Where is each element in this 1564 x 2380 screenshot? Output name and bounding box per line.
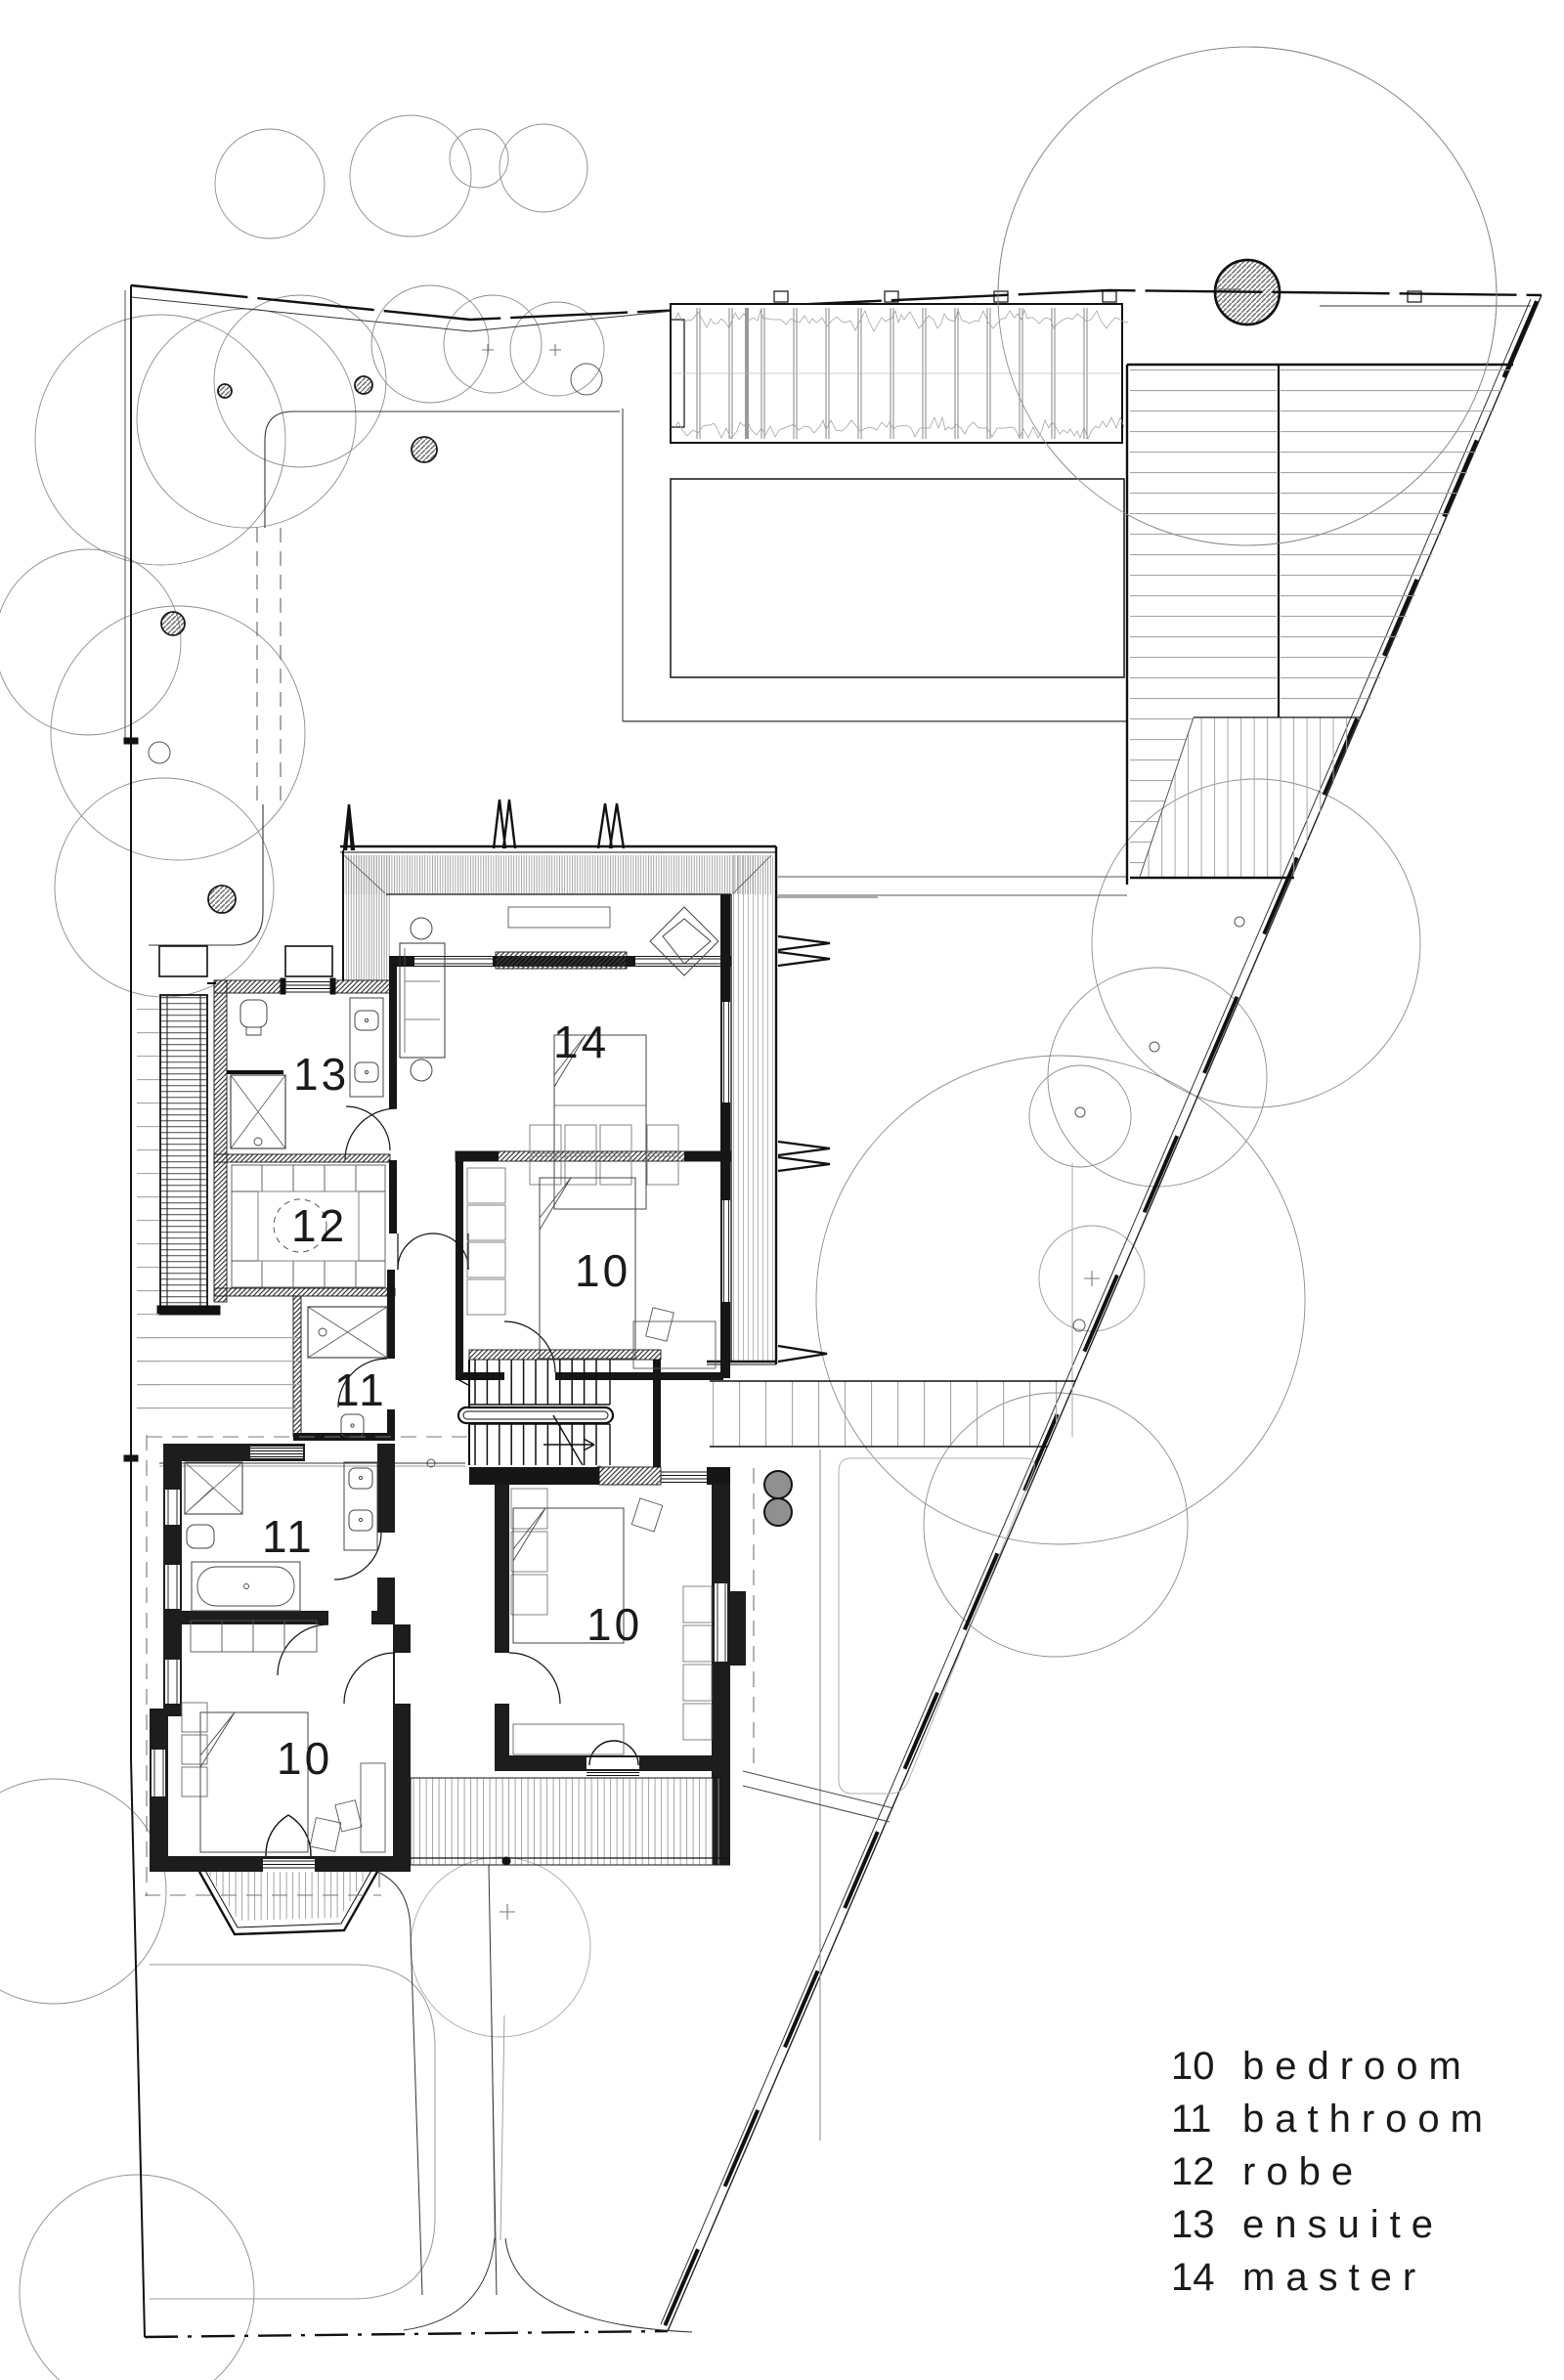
svg-text:14master: 14master [1171, 2256, 1426, 2299]
svg-text:13ensuite: 13ensuite [1171, 2203, 1444, 2246]
svg-text:13: 13 [293, 1049, 349, 1100]
svg-text:11: 11 [334, 1364, 387, 1415]
svg-text:10: 10 [586, 1599, 642, 1650]
svg-text:11: 11 [262, 1511, 315, 1562]
svg-text:10: 10 [575, 1245, 630, 1296]
svg-text:14: 14 [553, 1017, 609, 1067]
svg-text:10: 10 [277, 1733, 332, 1784]
svg-text:12: 12 [291, 1200, 347, 1251]
svg-text:12robe: 12robe [1171, 2150, 1364, 2193]
